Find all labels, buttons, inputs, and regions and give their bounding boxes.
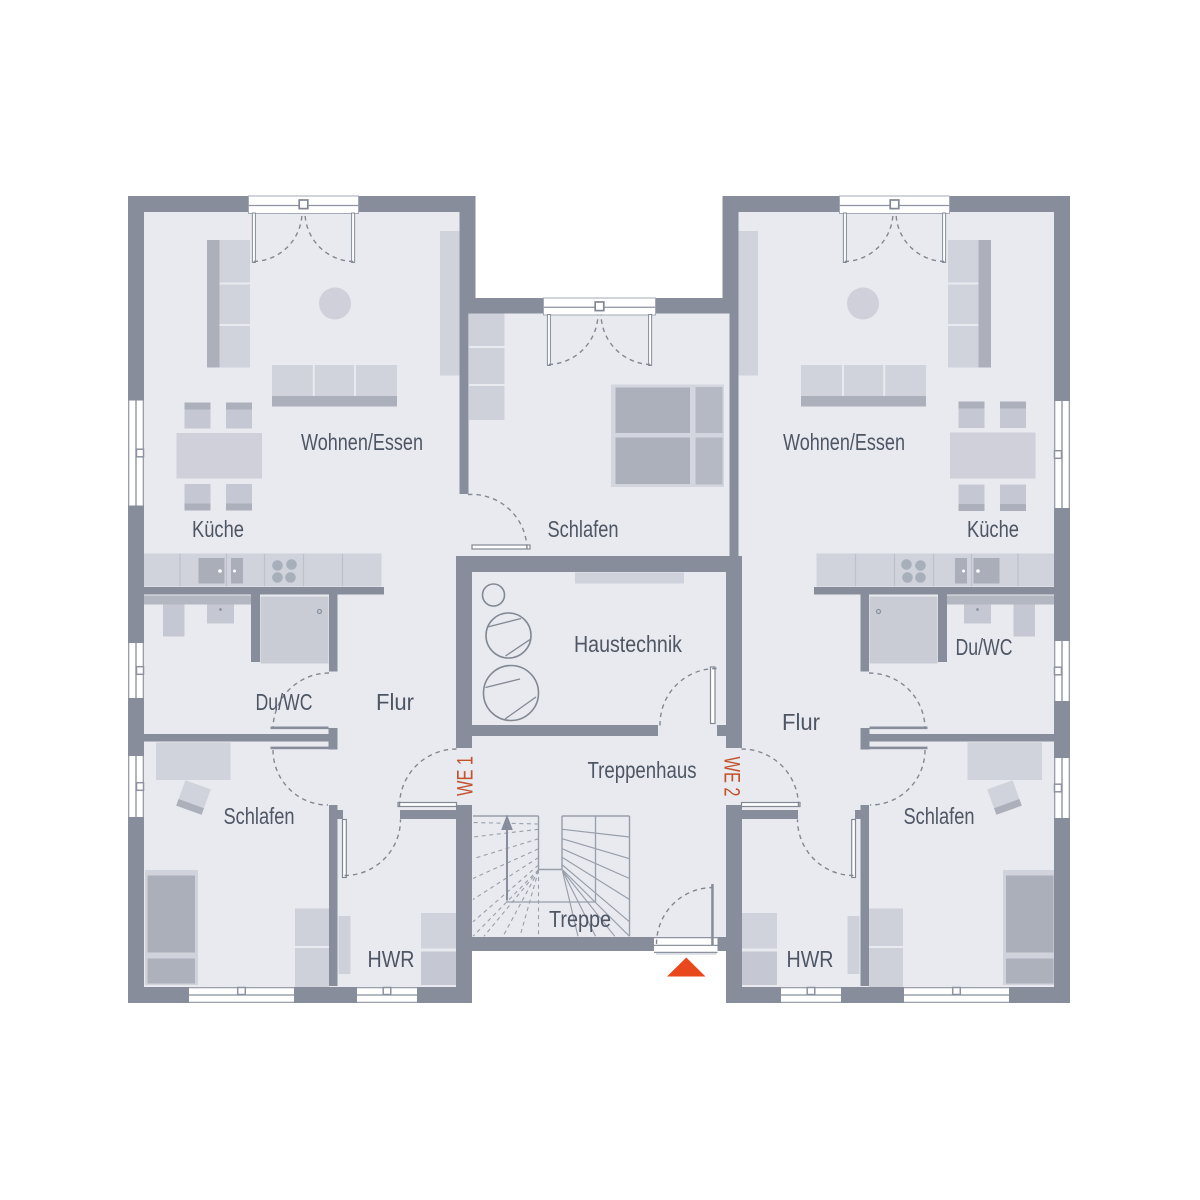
svg-text:Haustechnik: Haustechnik bbox=[574, 631, 682, 657]
svg-text:Schlafen: Schlafen bbox=[904, 803, 975, 829]
svg-text:WE 2: WE 2 bbox=[720, 757, 745, 797]
svg-text:Du/WC: Du/WC bbox=[956, 634, 1013, 660]
svg-text:Wohnen/Essen: Wohnen/Essen bbox=[301, 429, 423, 455]
svg-text:Küche: Küche bbox=[192, 516, 244, 542]
svg-text:Treppenhaus: Treppenhaus bbox=[588, 757, 697, 783]
svg-text:WE 1: WE 1 bbox=[453, 756, 478, 796]
svg-text:Schlafen: Schlafen bbox=[548, 516, 619, 542]
svg-text:Flur: Flur bbox=[782, 709, 820, 735]
svg-text:HWR: HWR bbox=[368, 946, 415, 972]
svg-text:Treppe: Treppe bbox=[549, 906, 611, 932]
svg-text:Schlafen: Schlafen bbox=[224, 803, 295, 829]
svg-text:HWR: HWR bbox=[787, 946, 834, 972]
svg-text:Wohnen/Essen: Wohnen/Essen bbox=[783, 429, 905, 455]
svg-text:Küche: Küche bbox=[967, 516, 1019, 542]
svg-text:Du/WC: Du/WC bbox=[256, 689, 313, 715]
svg-text:Flur: Flur bbox=[376, 689, 414, 715]
